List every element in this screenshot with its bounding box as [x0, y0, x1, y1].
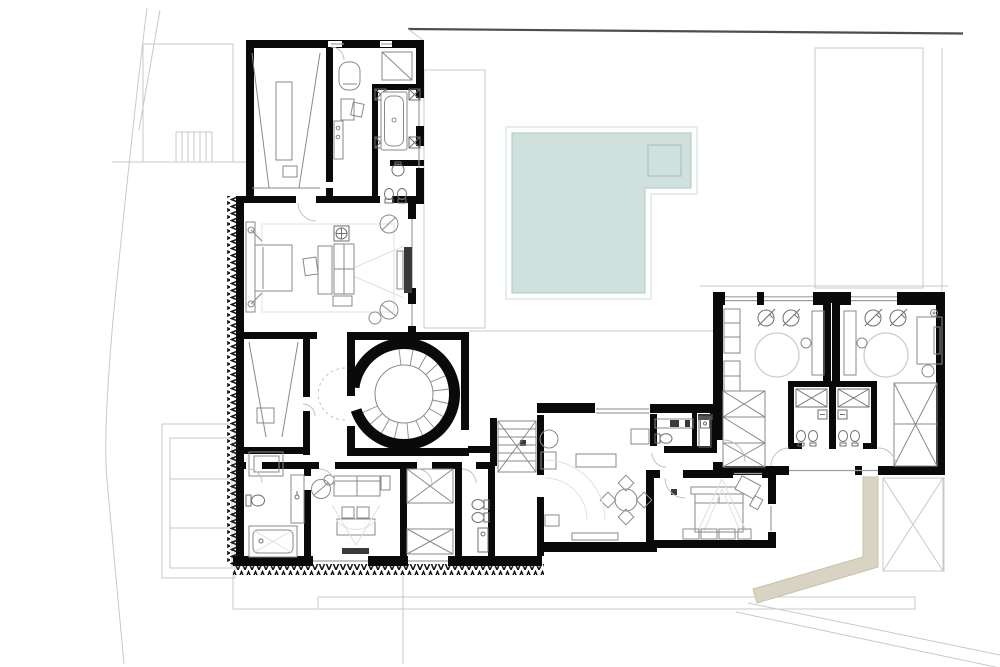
wall	[303, 411, 310, 455]
cabinet	[631, 429, 649, 444]
door-swing	[298, 203, 316, 221]
bathroom-suite-left	[723, 309, 824, 467]
wall	[788, 387, 794, 449]
vanity-desk	[812, 311, 824, 375]
wall	[537, 403, 595, 413]
guest-bedroom	[683, 476, 763, 539]
bathroom-suite-right	[844, 309, 942, 466]
site-boundary-bottom-inner	[748, 603, 1000, 655]
wall	[408, 203, 416, 219]
door-swing	[665, 478, 685, 498]
armchair	[312, 480, 331, 499]
dining-table	[615, 489, 637, 511]
planter-strip	[424, 70, 485, 328]
lower-path-outline	[318, 597, 915, 609]
wall	[788, 381, 877, 387]
floor-plan-drawing	[0, 0, 1000, 667]
bathtub	[796, 389, 827, 407]
wall	[646, 470, 654, 548]
wall	[490, 418, 497, 466]
ceiling-fan	[334, 226, 349, 241]
wall	[455, 462, 462, 469]
site-boundary-left	[106, 8, 147, 664]
side-table	[381, 476, 390, 490]
hatch-band-west	[227, 196, 236, 565]
wall	[692, 413, 697, 449]
window-bench	[397, 251, 403, 289]
exterior-staircase	[176, 132, 212, 162]
garden-terrace-outline	[162, 424, 235, 578]
wall	[304, 490, 311, 556]
wall	[537, 497, 544, 556]
wall	[713, 292, 723, 440]
stool	[922, 365, 934, 377]
wall	[303, 339, 310, 397]
wall	[650, 404, 716, 413]
shower	[699, 417, 711, 447]
sink	[783, 309, 800, 326]
sink	[758, 309, 775, 326]
family-room	[540, 429, 652, 540]
dining-chair	[618, 475, 634, 491]
stool	[801, 338, 811, 348]
door-gap	[296, 196, 316, 203]
sink	[670, 420, 679, 427]
table	[337, 519, 375, 535]
bathtub	[381, 92, 407, 150]
wall	[326, 48, 333, 182]
wardrobe-room	[407, 469, 453, 554]
skylight	[883, 478, 943, 571]
master-bedroom	[246, 215, 412, 324]
wall	[236, 196, 244, 565]
shower	[755, 333, 799, 377]
wall	[236, 196, 424, 203]
pool-area	[424, 70, 713, 331]
bed	[255, 245, 292, 291]
wall	[400, 462, 407, 556]
wall	[400, 462, 417, 469]
lawn-outline	[815, 48, 923, 288]
wall	[311, 462, 319, 469]
sitting-room	[312, 475, 391, 554]
wall	[347, 332, 469, 340]
bathtub-room	[375, 89, 420, 150]
door-gap	[378, 160, 390, 166]
bathroom-west	[246, 475, 304, 557]
window-bench	[572, 533, 618, 540]
toilet	[655, 434, 672, 444]
door-swing	[462, 469, 476, 483]
vanity-desk	[844, 311, 856, 375]
site-wall-top	[408, 29, 963, 34]
dining-chair	[618, 509, 634, 525]
wall	[368, 556, 408, 566]
wall	[543, 542, 657, 552]
wall	[768, 470, 776, 504]
walk-in-closet	[249, 342, 298, 476]
media-unit	[404, 247, 412, 293]
cabinet	[545, 515, 559, 526]
wall	[347, 448, 469, 456]
secondary-staircase	[498, 421, 536, 472]
toilet	[472, 500, 489, 510]
wall	[236, 332, 317, 339]
chair	[342, 507, 354, 518]
sofa	[334, 244, 354, 294]
bidet	[851, 431, 860, 447]
sofa	[334, 476, 380, 496]
desk-chair	[303, 257, 318, 276]
site-line	[408, 29, 424, 41]
wall	[432, 462, 455, 469]
wall	[871, 387, 877, 449]
stool	[857, 338, 867, 348]
wall-cabinet	[724, 309, 740, 391]
lounge-chair	[380, 301, 398, 319]
home-cinema	[252, 53, 320, 188]
wall	[757, 292, 764, 305]
wall	[646, 540, 776, 548]
wall	[236, 462, 246, 469]
wall	[448, 556, 542, 566]
wall	[347, 332, 355, 396]
wall	[863, 443, 877, 449]
swimming-pool	[512, 133, 691, 293]
door-swing	[319, 469, 335, 485]
wall	[878, 466, 945, 475]
headboard	[246, 222, 255, 312]
ottoman	[333, 296, 352, 306]
bathtub	[249, 526, 297, 557]
toilet	[246, 495, 265, 506]
wall	[242, 447, 304, 454]
wall	[455, 462, 462, 556]
bidet	[809, 431, 818, 447]
desk-chair	[351, 102, 364, 117]
dining-chair	[600, 492, 616, 508]
wall	[461, 332, 469, 430]
toilet	[839, 431, 848, 447]
side-table	[369, 312, 381, 324]
shower	[864, 333, 908, 377]
bed	[695, 494, 743, 532]
door-swing	[318, 368, 345, 395]
sideboard	[576, 454, 616, 467]
desk	[318, 246, 332, 294]
wall	[335, 462, 400, 469]
lounge-chair	[339, 62, 360, 90]
wall	[304, 462, 311, 476]
site-boundary-left-inner	[139, 10, 160, 130]
bathtub	[838, 389, 869, 407]
window-sill	[342, 548, 369, 554]
door-swing	[652, 453, 666, 467]
spiral-staircase	[318, 338, 460, 450]
closet	[894, 383, 937, 466]
floor-plan-canvas	[0, 0, 1000, 667]
column	[671, 489, 677, 495]
sink	[865, 309, 882, 326]
bidet	[472, 513, 489, 523]
sink	[890, 309, 907, 326]
wc-west	[472, 500, 489, 553]
family-wc	[655, 417, 711, 447]
garden-terrace-inner	[170, 438, 232, 568]
site-boundary-bottom	[736, 612, 1000, 667]
door-swing	[318, 393, 345, 420]
wall	[829, 387, 836, 449]
wall	[768, 532, 776, 548]
wall	[468, 446, 492, 453]
chair	[357, 507, 369, 518]
door-swing	[771, 448, 789, 466]
door-swing	[878, 448, 896, 466]
wall	[246, 40, 254, 202]
vanity	[291, 475, 304, 523]
